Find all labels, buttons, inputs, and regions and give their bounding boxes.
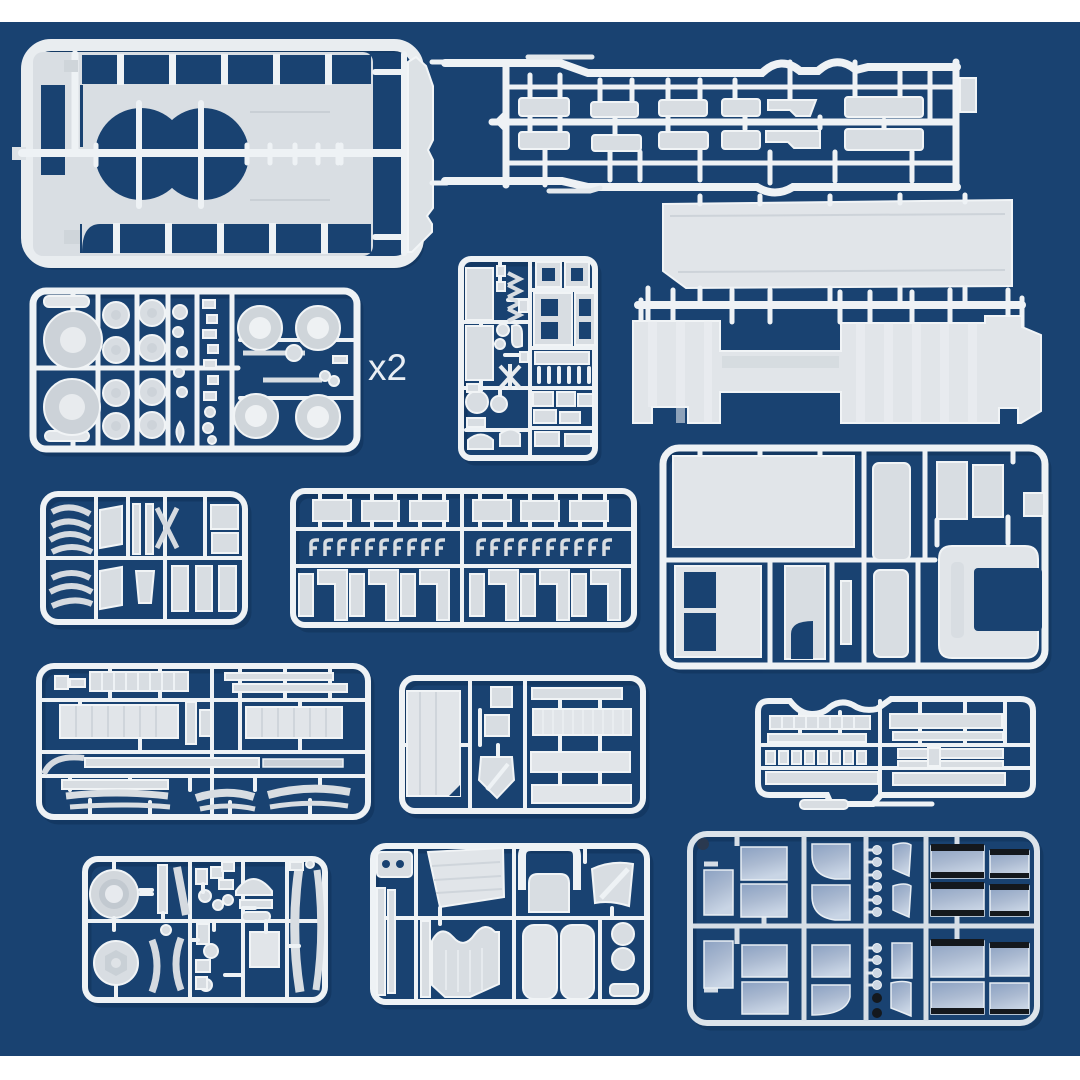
svg-text:x2: x2 [368, 347, 407, 388]
